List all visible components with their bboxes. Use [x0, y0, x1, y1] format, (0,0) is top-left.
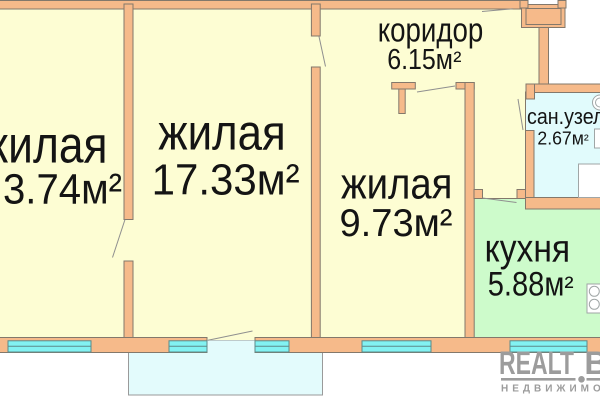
svg-text:REALT: REALT: [499, 345, 574, 381]
svg-text:9.73м²: 9.73м²: [340, 202, 453, 245]
svg-text:кухня: кухня: [485, 228, 571, 271]
svg-text:²: ²: [564, 271, 573, 302]
svg-text:жилая: жилая: [158, 105, 286, 161]
svg-text:²: ²: [453, 48, 461, 75]
svg-text:жилая: жилая: [341, 159, 453, 208]
svg-text:3.74м²: 3.74м²: [3, 166, 122, 214]
svg-text:2.67м: 2.67м: [537, 129, 584, 150]
svg-text:НЕДВИЖИМОСТЬ: НЕДВИЖИМОСТЬ: [501, 384, 600, 395]
svg-text:сан.узел: сан.узел: [527, 104, 600, 129]
svg-text:²: ²: [584, 133, 589, 149]
svg-text:6.15м: 6.15м: [387, 43, 453, 75]
svg-text:BY: BY: [584, 345, 600, 381]
svg-text:5.88м: 5.88м: [488, 266, 565, 304]
svg-text:17.33м²: 17.33м²: [152, 156, 300, 205]
